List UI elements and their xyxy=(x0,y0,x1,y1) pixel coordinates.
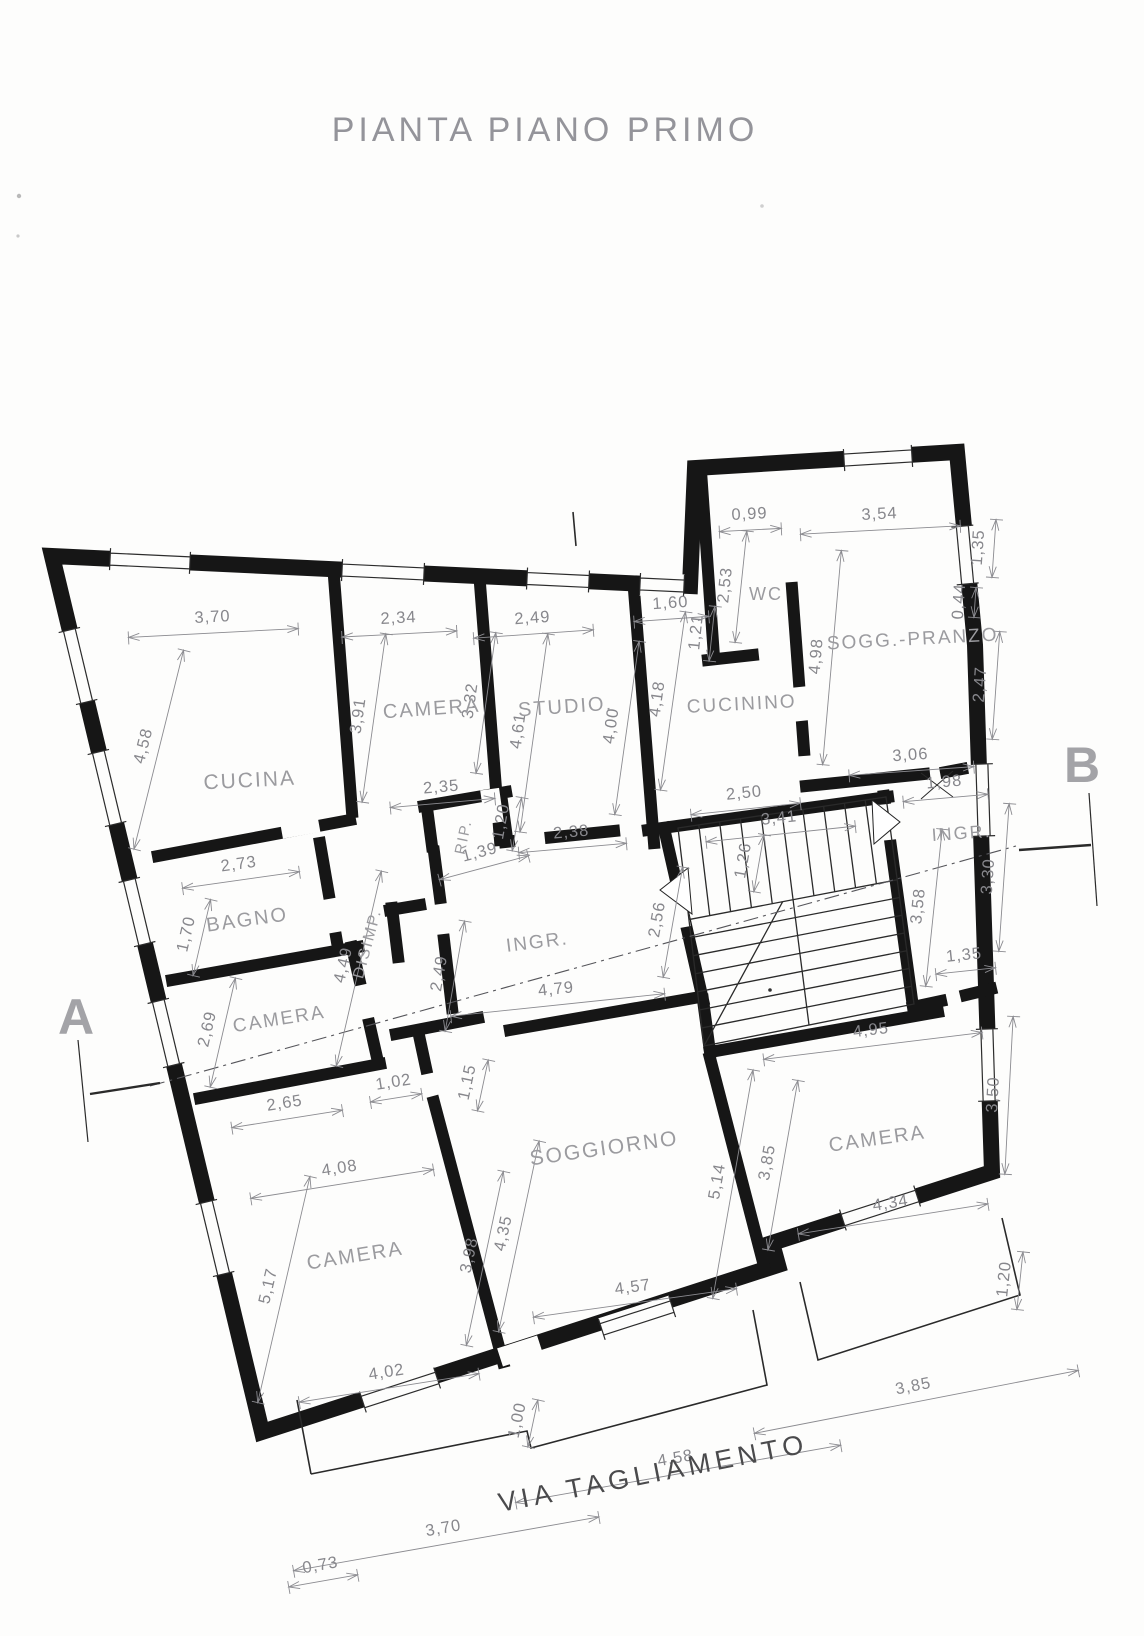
dimension-label: 2,69 xyxy=(194,1009,220,1048)
dimension-label: 3,41 xyxy=(760,807,798,829)
window-opening xyxy=(87,749,127,826)
scanned-floor-plan-page: 3,702,342,491,600,993,541,350,442,531,21… xyxy=(0,0,1144,1636)
stair-center-dot xyxy=(768,988,772,992)
dimension-label: 1,15 xyxy=(455,1063,480,1102)
dimension-label: 1,21 xyxy=(685,613,707,651)
window-opening xyxy=(58,627,98,704)
dimension: 3,70 xyxy=(127,604,298,645)
dimension-label: 2,38 xyxy=(552,821,590,842)
dimension-label: 3,91 xyxy=(347,697,370,735)
dimension-label: 2,49 xyxy=(514,608,551,628)
dimension-label: 1,35 xyxy=(945,944,983,966)
floor-plan-svg: 3,702,342,491,600,993,541,350,442,531,21… xyxy=(0,0,1144,1636)
room-label: INGR. xyxy=(931,821,992,845)
section-mark-b-arm xyxy=(1019,845,1091,850)
dimension: 2,34 xyxy=(341,606,458,644)
window-opening xyxy=(195,1199,235,1276)
dimension: 3,85 xyxy=(750,1346,1080,1440)
dimension-label: 2,47 xyxy=(970,666,990,703)
dimension: 1,00 xyxy=(503,1395,544,1449)
section-mark-a xyxy=(78,1040,88,1142)
window-opening xyxy=(526,567,589,593)
dimension-label: 3,06 xyxy=(892,745,929,765)
dimension-label: 4,58 xyxy=(130,726,156,765)
dimension-label: 5,17 xyxy=(255,1266,281,1305)
dimension-label: 1,00 xyxy=(505,1401,530,1440)
dimension-label: 5,14 xyxy=(705,1162,729,1201)
room-label: SOGGIORNO xyxy=(528,1127,680,1171)
dimension-label: 2,65 xyxy=(265,1091,303,1114)
section-label-b: B xyxy=(1064,737,1100,793)
dimension-label: 4,98 xyxy=(805,637,826,675)
dimension-label: 4,95 xyxy=(852,1019,890,1041)
dimension: 1,26 xyxy=(729,830,771,893)
dimension-label: 3,30 xyxy=(978,858,998,895)
dimension: 0,99 xyxy=(718,503,782,538)
room-label: CUCININO xyxy=(686,691,797,718)
dimension: 0,73 xyxy=(284,1550,358,1594)
dimension: 1,15 xyxy=(453,1055,495,1113)
section-label-a: A xyxy=(58,989,94,1045)
dimension-label: 2,35 xyxy=(422,776,460,797)
dimension-label: 3,70 xyxy=(424,1516,463,1540)
dimension-label: 0,44 xyxy=(949,583,969,620)
door-opening xyxy=(758,645,786,667)
dimension: 3,54 xyxy=(799,501,960,541)
page-title: PIANTA PIANO PRIMO xyxy=(332,111,759,149)
door-opening xyxy=(280,813,321,838)
section-mark-b xyxy=(1089,793,1097,906)
dimension-label: 1,35 xyxy=(968,529,988,566)
reference-tick xyxy=(573,512,576,546)
dimension-label: 3,50 xyxy=(983,1076,1003,1113)
openings-layer xyxy=(58,444,1000,1412)
dimension-label: 4,18 xyxy=(646,680,669,718)
room-label: INGR. xyxy=(505,928,570,956)
dimension-label: 2,50 xyxy=(725,782,763,804)
dimension-label: 2,56 xyxy=(645,900,669,939)
dimension-label: 4,35 xyxy=(491,1214,516,1253)
window-opening xyxy=(118,877,156,947)
room-label: BAGNO xyxy=(205,903,290,936)
dimension-label: 3,85 xyxy=(894,1374,933,1399)
dimension-label: 4,57 xyxy=(614,1276,652,1299)
dimension: 1,02 xyxy=(367,1069,423,1109)
window-opening xyxy=(147,998,185,1068)
street-label: VIA TAGLIAMENTO xyxy=(496,1428,811,1518)
room-label: CAMERA xyxy=(827,1121,927,1156)
balcony-right xyxy=(800,1218,1020,1360)
dimension-label: 3,54 xyxy=(861,504,898,524)
room-label: CAMERA xyxy=(305,1238,405,1275)
dimension-label: 1,70 xyxy=(173,914,199,953)
dimension: 4,08 xyxy=(247,1145,435,1206)
street-label-group: VIA TAGLIAMENTO xyxy=(496,1428,811,1518)
room-label: WC xyxy=(749,584,783,604)
dimension-label: 2,34 xyxy=(380,608,417,628)
dimension-label: 4,08 xyxy=(320,1156,358,1179)
dimension-label: 0,99 xyxy=(731,504,768,524)
dimension-label: 1,02 xyxy=(374,1070,412,1093)
door-opening xyxy=(318,898,343,935)
dimension-label: 4,79 xyxy=(537,978,575,1000)
window-opening xyxy=(843,444,912,471)
room-label: STUDIO. xyxy=(517,693,613,722)
room-label: CAMERA xyxy=(231,1002,326,1037)
scan-specks xyxy=(16,194,763,238)
dimension-label: 0,73 xyxy=(301,1553,340,1577)
dimension-label: 1,98 xyxy=(925,771,963,792)
dimension-label: 2,53 xyxy=(714,566,736,604)
dimension-label: 3,70 xyxy=(194,607,231,627)
dimension-label: 1,60 xyxy=(652,593,689,613)
dimension-label: 3,85 xyxy=(755,1143,779,1182)
window-opening xyxy=(342,559,425,586)
dimension-label: 1,20 xyxy=(993,1260,1015,1298)
dimension-label: 1,26 xyxy=(731,841,755,880)
window-opening xyxy=(110,548,191,575)
dimension-label: 2,73 xyxy=(220,853,258,876)
room-label: CUCINA xyxy=(203,767,297,795)
section-mark-a-arm xyxy=(90,1083,160,1094)
dimension-label: 3,58 xyxy=(907,887,929,925)
